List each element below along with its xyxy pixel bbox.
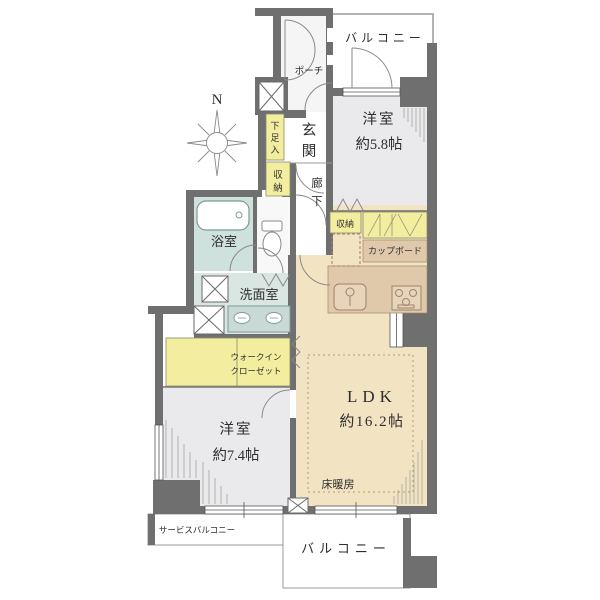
- svg-text:入: 入: [270, 145, 279, 155]
- wic-label-line2: クローゼット: [230, 366, 281, 376]
- stove-icon: [392, 286, 421, 310]
- kitchen-sink-icon: [334, 284, 366, 310]
- pipe-space-icon: [194, 306, 224, 334]
- pipe-space-small-icon: [288, 498, 308, 513]
- service-balcony-label: サービスバルコニー: [159, 525, 235, 535]
- svg-text:玄: 玄: [302, 122, 317, 139]
- compass-north-label: N: [212, 92, 223, 108]
- meter-box-icon: [259, 82, 284, 111]
- svg-text:足: 足: [270, 133, 279, 143]
- compass-icon: N: [187, 92, 247, 176]
- bedroom2-size: 約7.4帖: [212, 447, 259, 464]
- washing-machine-icon: [202, 276, 228, 302]
- cupboard-label: カップボード: [368, 246, 422, 256]
- bathtub-icon: [197, 201, 249, 230]
- svg-text:下: 下: [311, 196, 323, 208]
- svg-text:廊: 廊: [311, 176, 323, 190]
- bedroom1-size: 約5.8帖: [355, 136, 402, 153]
- porch-label: ポーチ: [295, 66, 324, 77]
- bedroom1-storage-label: 収納: [336, 218, 354, 229]
- shoe-cabinet-label: 下 足 入: [270, 121, 279, 155]
- bedroom1-name: 洋室: [363, 111, 396, 128]
- svg-text:納: 納: [273, 182, 283, 194]
- bathroom-label: 浴室: [211, 234, 237, 249]
- wic-box: [166, 338, 290, 386]
- bedroom2-name: 洋室: [220, 421, 253, 438]
- svg-text:関: 関: [302, 144, 317, 160]
- washroom-label: 洗面室: [239, 287, 278, 302]
- balcony-top-floor: [333, 14, 433, 88]
- vanity-icon: [228, 306, 290, 332]
- ldk-name: LDK: [347, 387, 397, 406]
- floor-heating-label: 床暖房: [322, 477, 355, 491]
- balcony-top-label: バルコニー: [345, 31, 425, 45]
- ldk-size: 約16.2帖: [339, 413, 404, 430]
- wic-label-line1: ウォークイン: [230, 352, 281, 362]
- svg-text:収: 収: [273, 169, 283, 181]
- floor-plan-page: N バルコニー ポーチ 洋室 約5.8帖 下 足 入 玄 関 収 納 廊 下 浴…: [0, 0, 600, 600]
- toilet-icon: [262, 221, 282, 256]
- svg-text:下: 下: [270, 121, 279, 131]
- balcony-bottom-label: バルコニー: [301, 541, 391, 556]
- floor-plan-drawing: N バルコニー ポーチ 洋室 約5.8帖 下 足 入 玄 関 収 納 廊 下 浴…: [0, 0, 600, 600]
